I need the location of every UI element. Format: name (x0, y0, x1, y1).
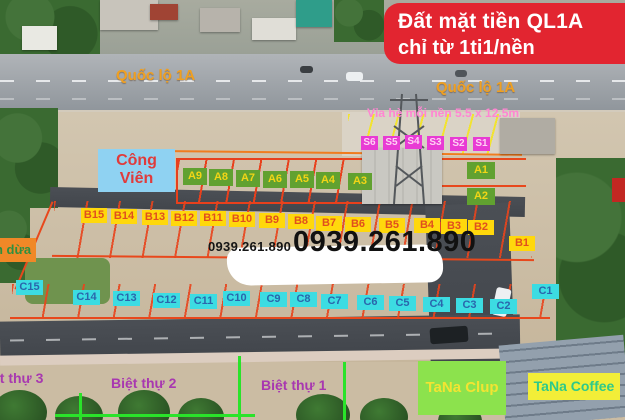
building-white-2 (252, 18, 296, 40)
park-label: Công Viên (98, 149, 175, 192)
lot-label-b1: B1 (509, 236, 535, 251)
lot-label-b14: B14 (111, 209, 137, 224)
car-on-highway-1 (300, 66, 313, 73)
highway-label-right: Quốc lộ 1A (436, 80, 515, 95)
palm-tree-1 (0, 390, 47, 420)
promo-banner: Đất mặt tiền QL1A chỉ từ 1ti1/nền (384, 3, 625, 64)
lot-label-c5: C5 (389, 296, 416, 311)
lot-label-a3: A3 (348, 173, 372, 190)
lot-label-a4: A4 (316, 172, 340, 189)
park-label-line2: Viên (98, 170, 175, 188)
lot-label-a6: A6 (263, 171, 287, 188)
palm-tree-6 (360, 398, 408, 420)
building-gray-2 (200, 8, 240, 32)
trees-top-mid (334, 0, 384, 42)
phone-number-large: 0939.261.890 (293, 228, 476, 257)
lot-label-c2: C2 (490, 299, 517, 314)
building-right-of-s (500, 118, 555, 154)
lot-label-b11: B11 (200, 211, 226, 226)
green-boundary-line-bottom (55, 414, 255, 417)
villa-2-label: Biệt thự 2 (111, 376, 176, 390)
lot-label-a2: A2 (467, 188, 495, 205)
lot-label-b9: B9 (259, 213, 285, 228)
lot-label-b12: B12 (171, 211, 197, 226)
building-teal-roof (296, 0, 332, 27)
park-label-line1: Công (98, 152, 175, 170)
building-white-1 (22, 26, 57, 50)
lot-label-s5: S5 (383, 136, 400, 150)
lot-label-a5: A5 (290, 171, 314, 188)
tana-coffee-label: TaNa Coffee (528, 373, 620, 400)
lot-label-b15: B15 (81, 208, 107, 223)
building-red-roof (150, 4, 178, 20)
a1-boundary-top (436, 158, 526, 160)
sidewalk-note: Vỉa hè mỗi nền 5.5 x 12.5m (367, 107, 519, 119)
villa-3-label: Biệt thự 3 (0, 371, 43, 385)
lot-label-c8: C8 (290, 292, 317, 307)
lot-label-s6: S6 (361, 136, 378, 150)
phone-number-small: 0939.261.890 (208, 240, 291, 253)
highway-lane-line-2 (0, 98, 625, 100)
lot-label-c4: C4 (423, 297, 450, 312)
palm-tree-5 (296, 394, 350, 420)
lot-label-a8: A8 (209, 169, 233, 186)
c-lot-bottom-line (10, 317, 550, 319)
red-sign-right (612, 178, 625, 202)
lot-label-s4: S4 (405, 135, 422, 149)
highway-lane-line (0, 80, 625, 82)
black-car (429, 326, 468, 345)
lot-label-a7: A7 (236, 170, 260, 187)
lot-label-c15: C15 (16, 280, 43, 295)
lot-label-s3: S3 (427, 136, 444, 150)
lot-label-c14: C14 (73, 290, 100, 305)
promo-banner-line2: chỉ từ 1ti1/nền (398, 37, 625, 60)
lot-label-s2: S2 (450, 137, 467, 151)
aerial-lot-map: Quốc lộ 1A Quốc lộ 1A Vỉa hè mỗi nền 5.5… (0, 0, 625, 420)
lot-label-b10: B10 (229, 212, 255, 227)
lot-label-c6: C6 (357, 295, 384, 310)
green-boundary-line-3 (343, 362, 346, 420)
green-boundary-line-2 (238, 356, 241, 420)
promo-banner-line1: Đất mặt tiền QL1A (398, 10, 625, 34)
lot-label-b13: B13 (142, 210, 168, 225)
lot-label-c10: C10 (223, 291, 250, 306)
lot-label-c3: C3 (456, 298, 483, 313)
lot-label-c11: C11 (190, 294, 217, 309)
lot-label-c7: C7 (321, 294, 348, 309)
villa-1-label: Biệt thự 1 (261, 378, 326, 392)
van-on-highway (346, 72, 363, 81)
lot-label-a9: A9 (183, 168, 207, 185)
tana-club-label: TaNa Clup (418, 361, 506, 415)
lot-label-c9: C9 (260, 292, 287, 307)
lot-label-c12: C12 (153, 293, 180, 308)
a1-a2-divider (436, 185, 526, 187)
lot-label-c1: C1 (532, 284, 559, 299)
highway-label-left: Quốc lộ 1A (116, 68, 195, 83)
coconut-garden-label: n dừa (0, 238, 36, 262)
car-on-highway-2 (455, 70, 467, 77)
lot-label-c13: C13 (113, 291, 140, 306)
lot-label-s1: S1 (473, 137, 490, 151)
lot-label-a1: A1 (467, 162, 495, 179)
